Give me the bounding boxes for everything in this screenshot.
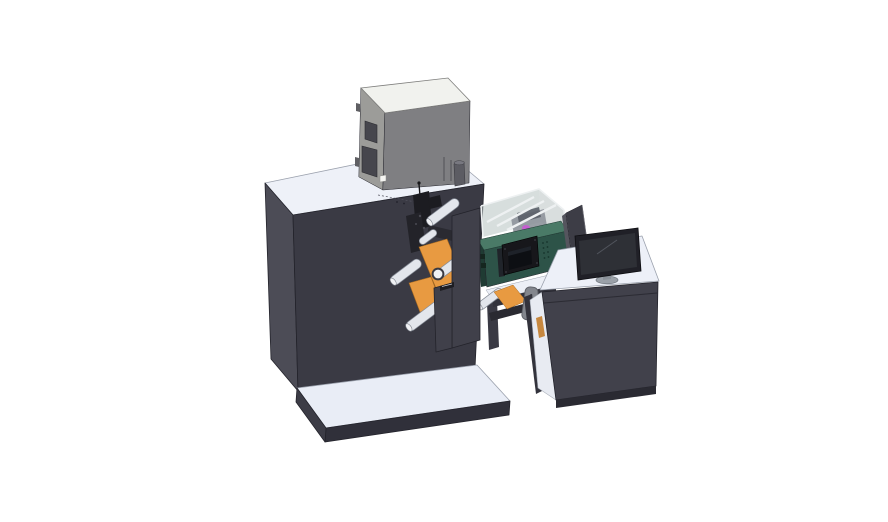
hinge-tab xyxy=(355,157,359,167)
door-lower[interactable] xyxy=(434,283,452,352)
name-plate xyxy=(380,175,386,182)
sensor-rod-tip xyxy=(417,181,420,184)
mount-hole xyxy=(396,201,398,203)
hmi-screw xyxy=(505,271,507,273)
mount-hole xyxy=(403,203,405,205)
electrical-box xyxy=(355,78,470,190)
box-door-panel xyxy=(365,121,377,143)
head-detail xyxy=(415,223,417,225)
cad-viewport xyxy=(0,0,888,522)
box-door-panel xyxy=(362,146,377,177)
exhaust-cylinder xyxy=(454,162,465,186)
connector-port xyxy=(481,263,486,268)
hmi-screw xyxy=(536,262,538,264)
hinge-tab xyxy=(356,103,360,112)
head-detail xyxy=(423,227,425,229)
hmi-screw xyxy=(534,239,536,241)
head-detail xyxy=(419,215,421,217)
machine-render xyxy=(0,0,888,522)
deck-leg xyxy=(487,300,499,350)
exhaust-cylinder-cap xyxy=(454,161,464,165)
desk-front-face xyxy=(542,282,658,400)
hmi-screw xyxy=(504,248,506,250)
connector-port xyxy=(480,254,485,259)
roller-end-cap xyxy=(433,269,444,280)
door-upper[interactable] xyxy=(452,208,480,348)
